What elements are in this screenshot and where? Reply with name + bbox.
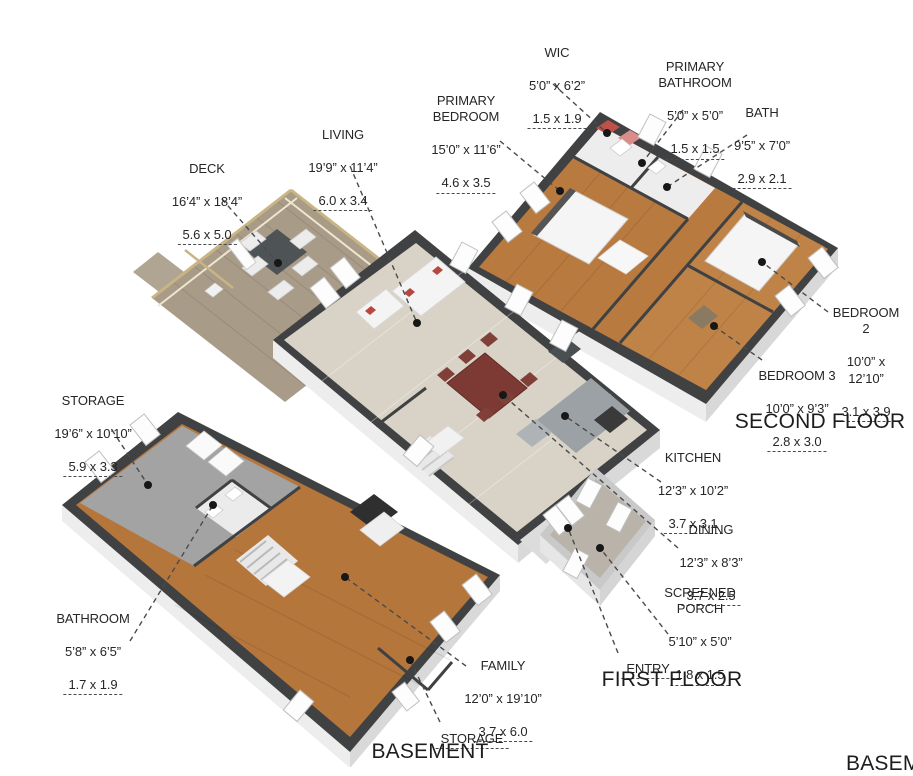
label-living: LIVING 19’9” x 11’4” 6.0 x 3.4 [308, 110, 377, 228]
imperial-dims: 10’0” x 12’10” [833, 354, 899, 387]
metric-dims: 6.0 x 3.4 [314, 193, 373, 212]
title-basement: BASEMENT [371, 740, 488, 764]
floorplan-page: { "titles": { "second": "SECOND FLOOR", … [0, 0, 913, 767]
room-name: SCREENED PORCH [664, 585, 735, 618]
room-name: DECK [172, 161, 242, 178]
imperial-dims: 19’9” x 11’4” [308, 160, 377, 177]
room-name: PRIMARY BATHROOM [658, 59, 731, 92]
label-deck: DECK 16’4” x 18’4” 5.6 x 5.0 [172, 144, 242, 262]
imperial-dims: 19’6” x 10’10” [54, 426, 131, 443]
imperial-dims: 9’5” x 7’0” [733, 138, 792, 155]
title-first-floor: FIRST FLOOR [602, 668, 743, 692]
room-name: BATH [733, 105, 792, 122]
imperial-dims: 5’10” x 5’0” [664, 634, 735, 651]
metric-dims: 4.6 x 3.5 [437, 175, 496, 194]
imperial-dims: 15’0” x 11’6” [431, 142, 500, 159]
metric-dims: 5.9 x 3.3 [64, 459, 123, 478]
room-name: PRIMARY BEDROOM [431, 93, 500, 126]
room-name: BATHROOM [56, 611, 129, 628]
room-name: STORAGE [54, 393, 131, 410]
imperial-dims: 5’8” x 6’5” [56, 644, 129, 661]
room-name: KITCHEN [658, 450, 728, 467]
title-basement-partial: BASEMENT [846, 752, 913, 776]
label-storage-basement: STORAGE 19’6” x 10’10” 5.9 x 3.3 [54, 376, 131, 494]
title-second-floor: SECOND FLOOR [735, 410, 905, 434]
label-wic: WIC 5’0” x 6’2” 1.5 x 1.9 [528, 28, 587, 146]
room-name: LIVING [308, 127, 377, 144]
room-name: BEDROOM 2 [833, 305, 899, 338]
imperial-dims: 5’0” x 5’0” [658, 108, 731, 125]
room-name: WIC [528, 45, 587, 62]
label-bath: BATH 9’5” x 7’0” 2.9 x 2.1 [733, 88, 792, 206]
room-name: FAMILY [464, 658, 541, 675]
label-primary-bathroom: PRIMARY BATHROOM 5’0” x 5’0” 1.5 x 1.5 [658, 42, 731, 176]
imperial-dims: 5’0” x 6’2” [528, 78, 587, 95]
metric-dims: 5.6 x 5.0 [178, 227, 237, 246]
room-name: BEDROOM 3 [758, 368, 835, 385]
metric-dims: 1.5 x 1.9 [528, 111, 587, 130]
metric-dims: 1.7 x 1.9 [64, 677, 123, 696]
metric-dims: 1.5 x 1.5 [666, 141, 725, 160]
label-bathroom: BATHROOM 5’8” x 6’5” 1.7 x 1.9 [56, 594, 129, 712]
room-name: DINING [679, 522, 742, 539]
metric-dims: 2.8 x 3.0 [768, 434, 827, 453]
imperial-dims: 12’3” x 10’2” [658, 483, 728, 500]
imperial-dims: 16’4” x 18’4” [172, 194, 242, 211]
imperial-dims: 12’0” x 19’10” [464, 691, 541, 708]
metric-dims: 2.9 x 2.1 [733, 171, 792, 190]
label-primary-bedroom: PRIMARY BEDROOM 15’0” x 11’6” 4.6 x 3.5 [431, 76, 500, 210]
